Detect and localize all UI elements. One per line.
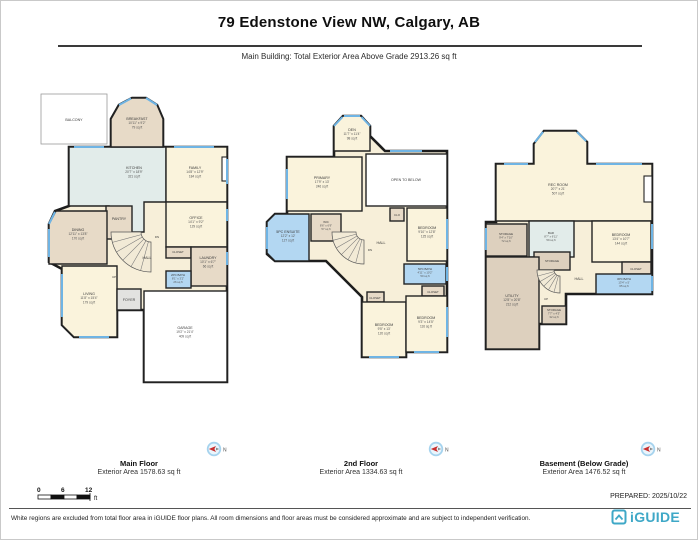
svg-text:127 sq ft: 127 sq ft [282,238,294,242]
label-clo: CLO [394,213,401,217]
label-closet-2f-mid: CLOSET [369,296,381,300]
svg-text:HALL: HALL [143,256,152,260]
floor-name-main: Main Floor [49,459,229,468]
label-family: FAMILY14'8" x 12'9"184 sq ft [186,166,203,178]
label-up-main: UP [112,275,116,279]
svg-text:409 sq ft: 409 sq ft [179,334,191,338]
svg-text:OPEN TO BELOW: OPEN TO BELOW [391,178,422,182]
floor-name-second: 2nd Floor [271,459,451,468]
header-rule [58,45,642,47]
svg-text:98 sq ft: 98 sq ft [347,136,358,140]
label-dn-main: DN [155,235,159,239]
label-open-to-below: OPEN TO BELOW [391,178,422,182]
svg-text:66 sq ft: 66 sq ft [203,264,214,268]
svg-text:50 sq ft: 50 sq ft [420,274,429,278]
label-pantry: PANTRY [112,217,127,221]
label-hall-main: HALL [143,256,152,260]
page-title: 79 Edenstone View NW, Calgary, AB [1,14,697,31]
svg-text:170 sq ft: 170 sq ft [72,236,84,240]
floor-name-basement: Basement (Below Grade) [494,459,674,468]
label-closet-2f-right: CLOSET [427,290,439,294]
iguide-logo: iGUIDE [611,509,680,525]
svg-text:0: 0 [37,487,41,494]
label-closet-bsmt: CLOSET [630,267,642,271]
page-subtitle: Main Building: Total Exterior Area Above… [1,52,697,61]
svg-text:212 sq ft: 212 sq ft [506,302,518,306]
caption-main-floor: Main Floor Exterior Area 1578.63 sq ft [49,459,229,476]
plan-second-floor: DEN11'7" x 11'4"98 sq ft PRIMARY17'9" x … [264,89,484,389]
svg-text:UP: UP [544,297,548,301]
label-storage-stairs: STORAGE [545,259,559,263]
svg-text:ft: ft [94,496,98,502]
svg-text:321 sq ft: 321 sq ft [128,174,140,178]
floor-plan-page: 79 Edenstone View NW, Calgary, AB Main B… [0,0,698,540]
label-dn-second: DN [368,248,372,252]
scale-bar: 0 6 12 ft [35,485,113,505]
compass-icon-second: N [428,441,456,457]
svg-text:FOYER: FOYER [123,298,136,302]
svg-text:129 sq ft: 129 sq ft [190,224,202,228]
label-up-bsmt: UP [544,297,548,301]
iguide-logo-icon [611,509,627,525]
iguide-logo-text: iGUIDE [630,509,680,525]
svg-text:65 sq ft: 65 sq ft [619,284,628,288]
svg-text:116 sq ft: 116 sq ft [420,324,432,328]
compass-icon-main: N [206,441,234,457]
svg-text:N: N [223,448,227,454]
svg-text:144 sq ft: 144 sq ft [615,241,627,245]
label-garage: GARAGE19'2" x 21'4"409 sq ft [176,326,193,338]
room-rec-room [496,131,652,221]
compass-icon-basement: N [640,441,668,457]
svg-text:57 sq ft: 57 sq ft [321,227,330,231]
label-hall-bsmt: HALL [575,277,584,281]
plan-main-floor: BALCONY BREAKFAST10'11" x 9'2"79 sq ft K… [34,89,264,389]
svg-text:32 sq ft: 32 sq ft [549,315,558,319]
label-kitchen: KITCHEN20'7" x 18'9"321 sq ft [125,166,142,178]
floor-area-basement: Exterior Area 1476.52 sq ft [494,469,674,476]
svg-text:120 sq ft: 120 sq ft [378,331,390,335]
label-foyer: FOYER [123,298,136,302]
svg-text:DN: DN [155,235,159,239]
svg-text:59 sq ft: 59 sq ft [546,238,555,242]
svg-text:N: N [657,448,661,454]
plan-basement: REC ROOM20'7" x 21'507 sq ft STORAGE9'4"… [484,104,697,394]
caption-second-floor: 2nd Floor Exterior Area 1334.63 sq ft [271,459,451,476]
svg-text:12: 12 [85,487,93,494]
disclaimer-text: White regions are excluded from total fl… [11,515,586,522]
svg-text:HALL: HALL [377,241,386,245]
svg-text:CLOSET: CLOSET [369,296,381,300]
svg-text:CLOSET: CLOSET [172,250,184,254]
footer-rule [9,508,691,509]
svg-text:N: N [445,448,449,454]
svg-text:HALL: HALL [575,277,584,281]
svg-text:CLOSET: CLOSET [630,267,642,271]
svg-text:246 sq ft: 246 sq ft [316,184,328,188]
svg-text:CLOSET: CLOSET [427,290,439,294]
svg-text:184 sq ft: 184 sq ft [189,174,201,178]
svg-text:179 sq ft: 179 sq ft [83,300,95,304]
label-closet-main: CLOSET [172,250,184,254]
label-balcony: BALCONY [65,118,83,122]
rec-room-fireplace [644,176,652,202]
floor-area-main: Exterior Area 1578.63 sq ft [49,469,229,476]
label-hall-second: HALL [377,241,386,245]
svg-text:BALCONY: BALCONY [65,118,83,122]
svg-text:UP: UP [112,275,116,279]
svg-text:PANTRY: PANTRY [112,217,127,221]
svg-text:DN: DN [368,248,372,252]
svg-text:6: 6 [61,487,65,494]
label-utility: UTILITY12'8" x 20'8"212 sq ft [503,294,520,306]
svg-text:507 sq ft: 507 sq ft [552,191,564,195]
svg-text:79 sq ft: 79 sq ft [132,125,143,129]
svg-text:125 sq ft: 125 sq ft [421,234,433,238]
svg-text:CLO: CLO [394,213,401,217]
prepared-date: PREPARED: 2025/10/22 [610,493,687,500]
floor-area-second: Exterior Area 1334.63 sq ft [271,469,451,476]
svg-text:STORAGE: STORAGE [545,259,559,263]
label-office: OFFICE14'1" x 9'2"129 sq ft [188,216,204,228]
caption-basement: Basement (Below Grade) Exterior Area 147… [494,459,674,476]
svg-text:72 sq ft: 72 sq ft [501,239,510,243]
svg-text:26 sq ft: 26 sq ft [173,280,182,284]
